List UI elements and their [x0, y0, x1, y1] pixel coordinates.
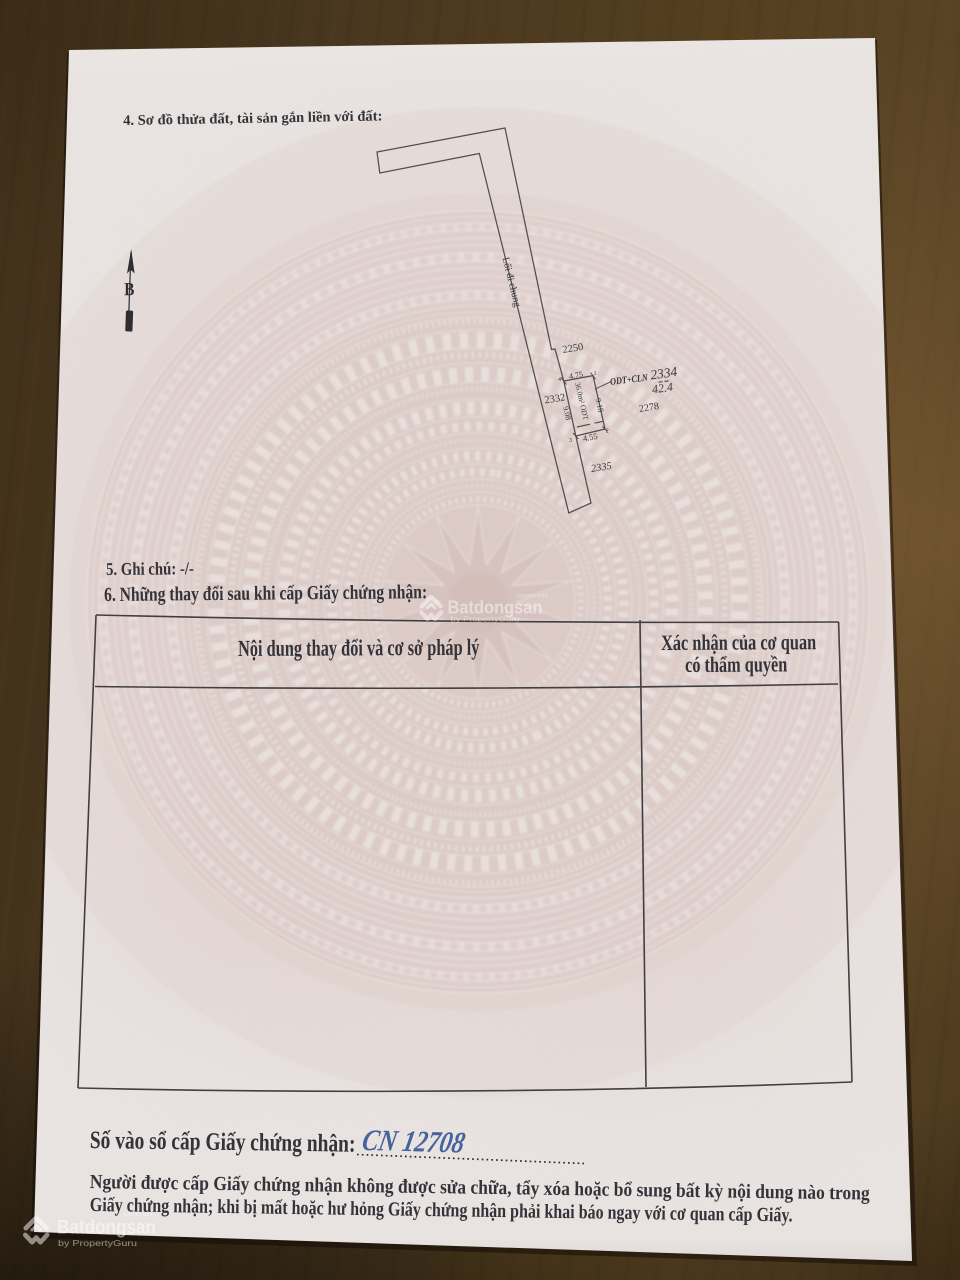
svg-text:3: 3	[569, 438, 572, 444]
svg-text:ODT+CLN: ODT+CLN	[609, 372, 648, 388]
svg-text:2334: 2334	[649, 364, 678, 383]
svg-text:9.18: 9.18	[594, 397, 606, 413]
svg-text:2332: 2332	[544, 392, 566, 406]
svg-text:4: 4	[558, 377, 561, 383]
svg-text:Lối đi chung: Lối đi chung	[500, 256, 523, 308]
svg-text:2250: 2250	[562, 342, 584, 356]
svg-text:9.08: 9.08	[561, 405, 573, 421]
svg-text:1: 1	[594, 371, 597, 377]
svg-text:2: 2	[606, 429, 609, 435]
svg-text:36.0m² ODT: 36.0m² ODT	[573, 381, 591, 421]
svg-text:2335: 2335	[590, 461, 612, 475]
svg-text:4.75: 4.75	[568, 370, 583, 381]
svg-text:2278: 2278	[638, 401, 659, 415]
svg-text:4.55: 4.55	[582, 431, 599, 444]
svg-text:42.4: 42.4	[651, 380, 674, 397]
